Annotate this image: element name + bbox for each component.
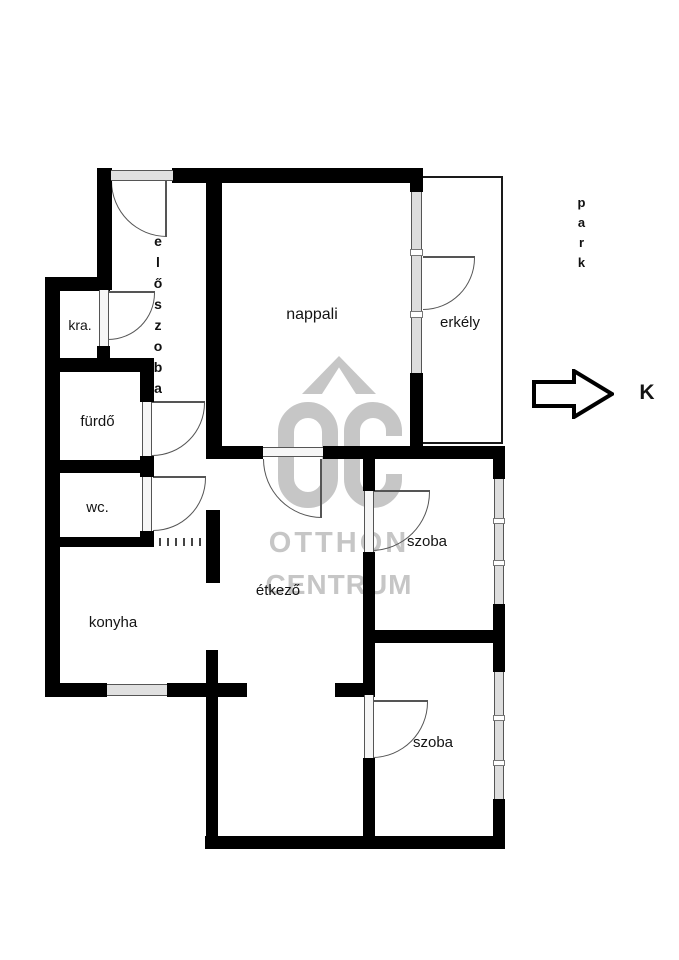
wall	[206, 168, 222, 459]
room-label-etkezo: étkező	[243, 582, 313, 599]
kamra-door-frame	[99, 290, 109, 346]
window-divider	[493, 760, 505, 766]
wall	[363, 630, 505, 643]
furdo-door-leaf	[152, 401, 205, 403]
room-label-szoba-also: szoba	[403, 734, 463, 751]
erkely-window	[411, 192, 422, 373]
wall	[140, 531, 154, 547]
east-arrow-icon	[532, 369, 614, 419]
window-divider	[410, 249, 423, 256]
erkely-outline	[421, 176, 503, 444]
room-label-szoba-felso: szoba	[397, 533, 457, 550]
entrance-door-frame	[111, 170, 173, 181]
room-label-furdo: fürdő	[70, 413, 125, 430]
wall	[205, 836, 505, 849]
wall	[45, 358, 153, 372]
wall	[493, 459, 505, 479]
window-divider	[493, 715, 505, 721]
wall	[140, 456, 154, 477]
entrance-door-arc	[111, 181, 167, 237]
szoba-also-window	[494, 672, 504, 799]
otthon-centrum-chevron-icon	[302, 356, 376, 394]
wall	[493, 604, 505, 672]
wc-door-frame	[142, 477, 152, 531]
nappali-door-arc	[263, 459, 322, 518]
kamra-door-arc	[108, 293, 155, 340]
furdo-door-frame	[142, 402, 152, 456]
park-label: park	[574, 195, 589, 275]
window-divider	[493, 518, 505, 524]
wall	[410, 168, 423, 192]
wall	[363, 459, 375, 491]
szoba-also-door-leaf	[372, 700, 428, 702]
entrance-door-leaf	[165, 181, 167, 237]
room-label-kamra: kra.	[60, 317, 100, 333]
wall	[97, 168, 112, 290]
wall	[206, 446, 263, 459]
nappali-door-frame	[263, 447, 323, 457]
wall	[45, 537, 151, 547]
floor-plan: OTTHON CENTRUM	[0, 0, 679, 960]
wall	[206, 650, 218, 849]
wall	[363, 552, 375, 695]
nappali-door-leaf	[320, 459, 322, 518]
szoba-felso-window	[494, 479, 504, 604]
szoba-also-door-frame	[364, 695, 374, 758]
room-label-nappali: nappali	[272, 306, 352, 324]
konyha-window	[107, 684, 167, 696]
wc-door-arc	[153, 478, 206, 531]
szoba-felso-door-leaf	[371, 490, 430, 492]
wall	[206, 510, 220, 583]
erkely-door-leaf	[423, 256, 475, 258]
wc-door-leaf	[153, 476, 206, 478]
furdo-door-arc	[152, 403, 205, 456]
open-passage-hatch	[151, 538, 207, 546]
wall	[45, 460, 144, 473]
room-label-erkely: erkély	[430, 314, 490, 331]
wall	[410, 373, 423, 459]
window-divider	[493, 560, 505, 566]
szoba-felso-door-frame	[364, 491, 374, 552]
room-label-eloszoba: előszoba	[150, 233, 166, 401]
wall	[45, 683, 107, 697]
compass-label: K	[632, 381, 662, 405]
room-label-konyha: konyha	[78, 614, 148, 631]
wall	[167, 683, 247, 697]
window-divider	[410, 311, 423, 318]
kamra-door-leaf	[108, 291, 155, 293]
wall	[45, 277, 60, 697]
room-label-wc: wc.	[75, 499, 120, 516]
